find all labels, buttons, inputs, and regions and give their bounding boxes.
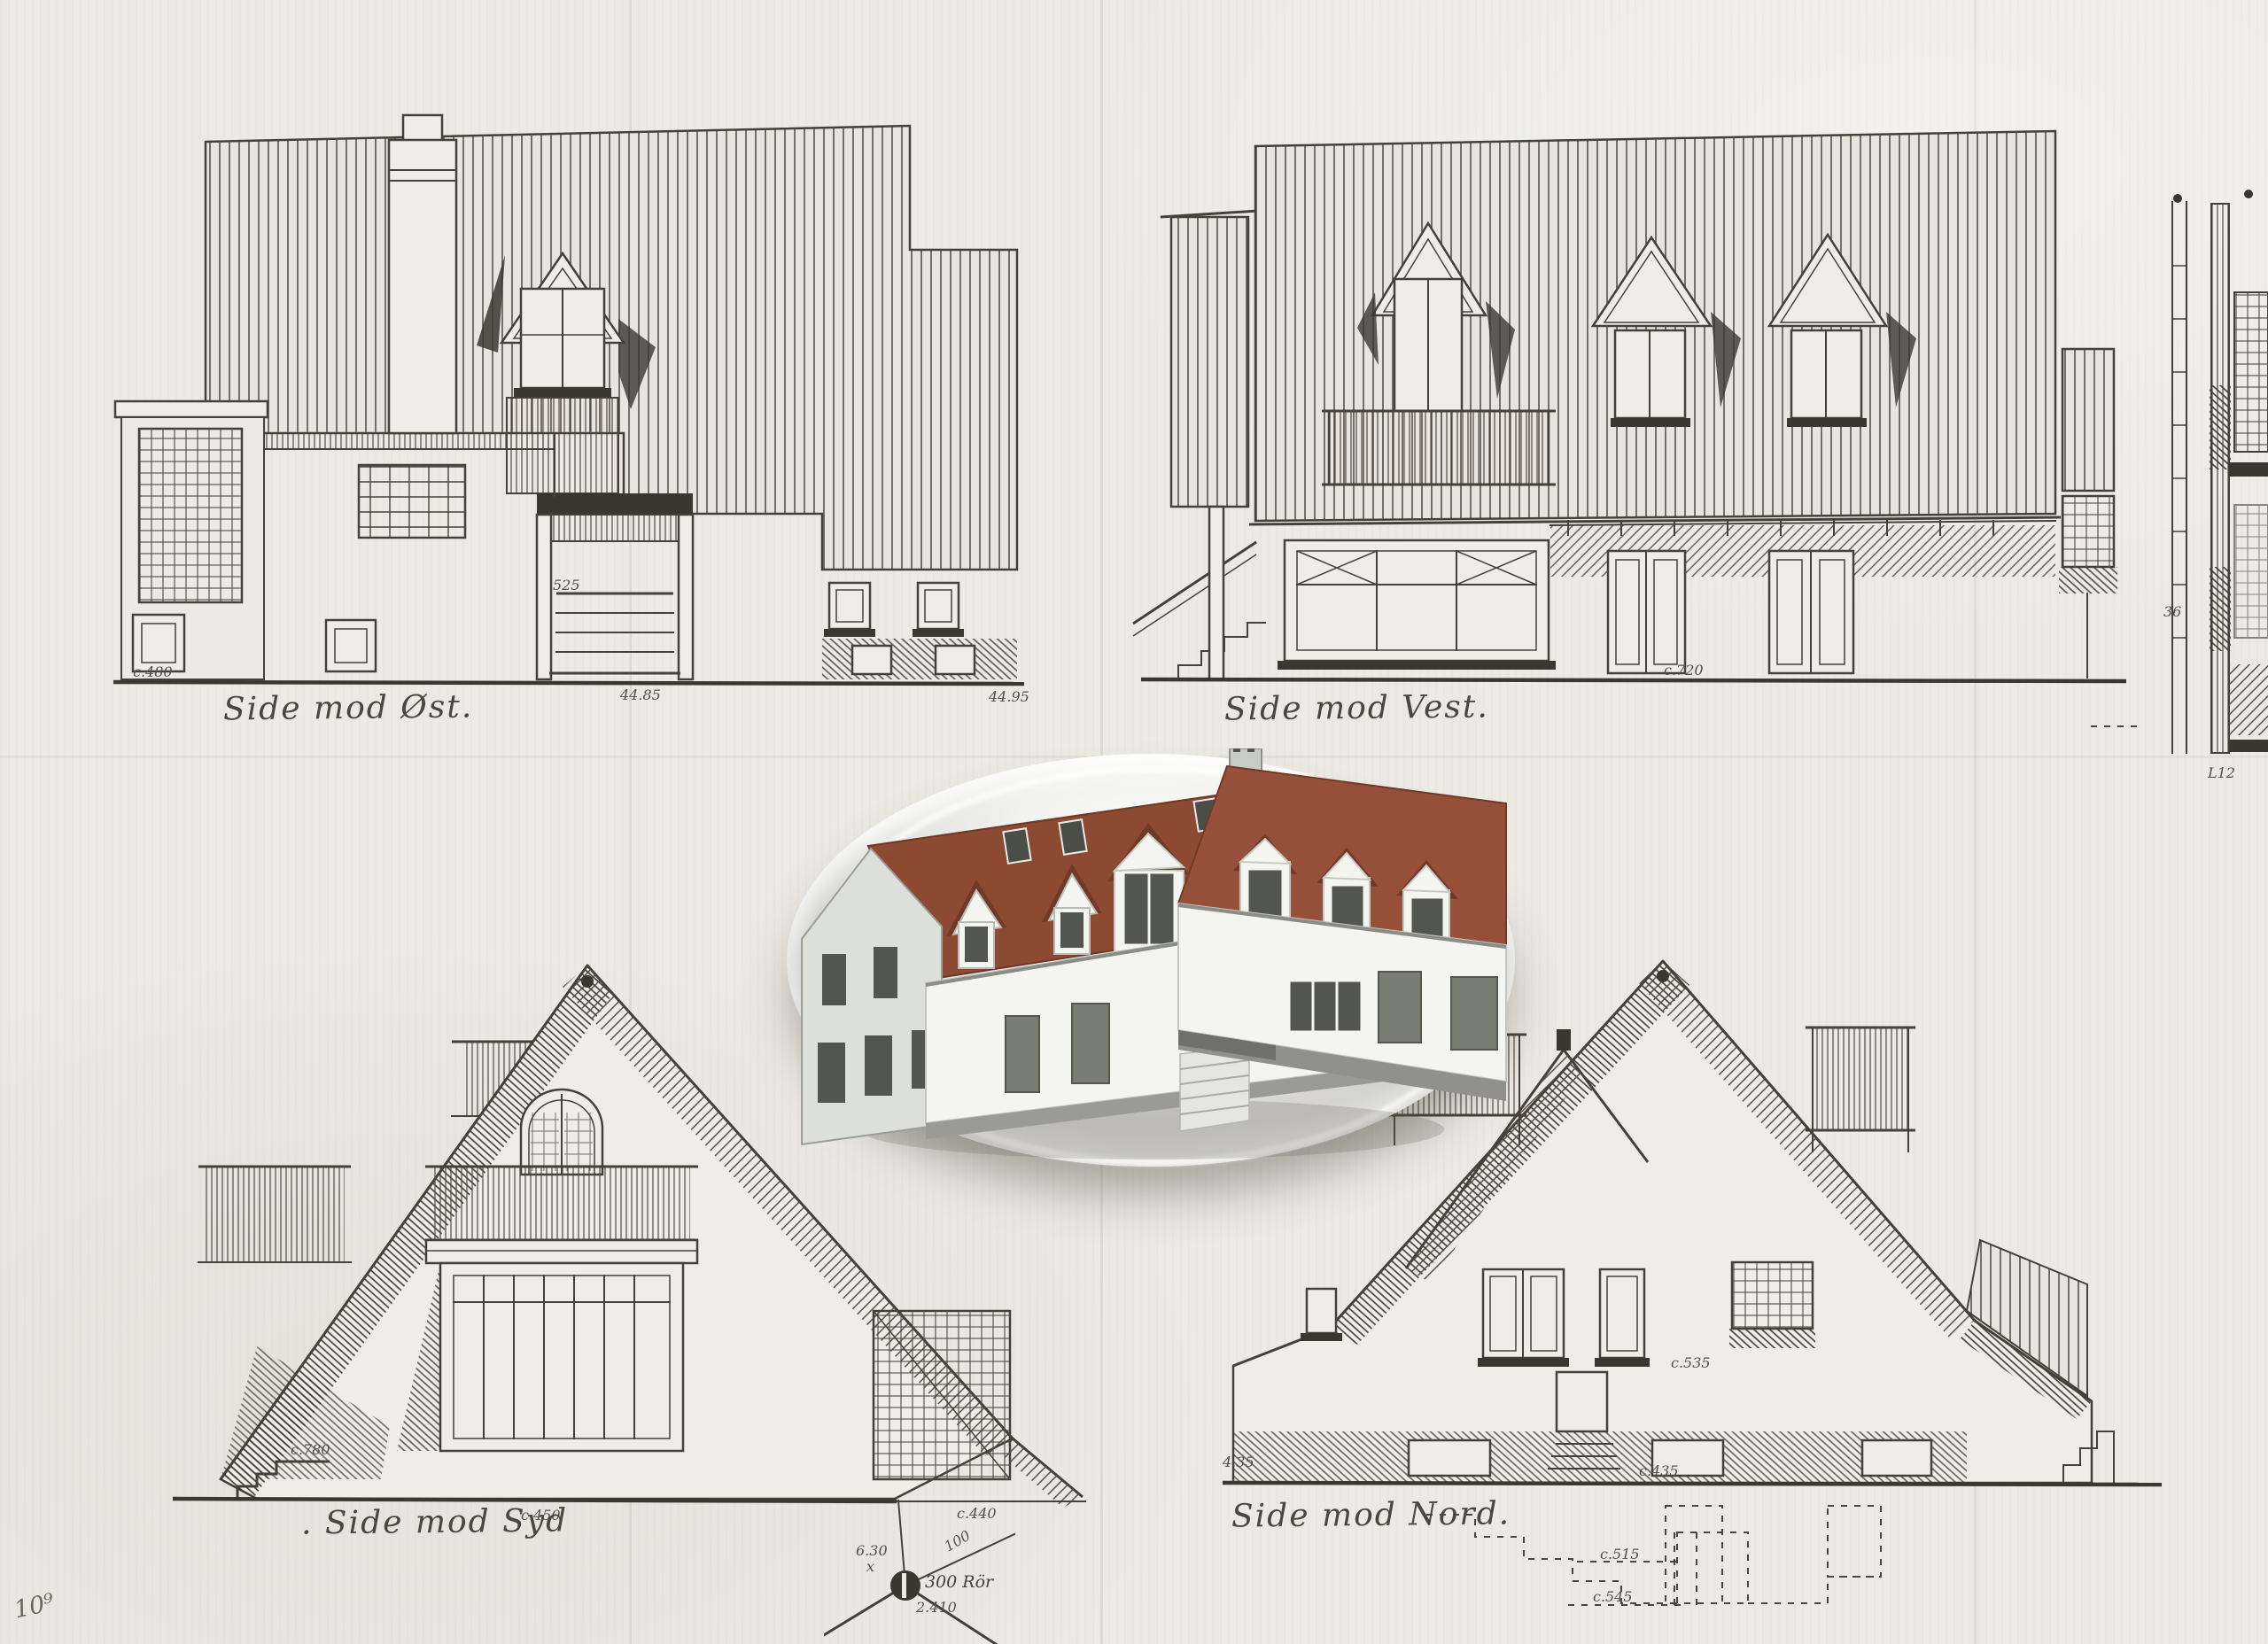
caption-south: . Side mod Syd	[301, 1502, 569, 1541]
dim-annotation: c.480	[133, 663, 173, 680]
dim-annotation: c.435	[1639, 1462, 1679, 1479]
east-chimney	[389, 115, 456, 433]
caption-west: Side mod Vest.	[1224, 688, 1489, 727]
west-french-door	[1769, 551, 1853, 673]
east-ground-line	[113, 682, 1024, 684]
west-french-door	[1608, 551, 1685, 673]
east-left-wing	[115, 401, 268, 679]
south-porch	[874, 1311, 1083, 1508]
dim-annotation: c.535	[1671, 1354, 1711, 1371]
dim-annotation: 36	[2163, 603, 2181, 620]
house-3d-render	[780, 748, 1524, 1174]
north-basement	[1233, 1431, 1967, 1483]
dim-annotation: 100	[942, 1527, 974, 1555]
dim-annotation: 525	[553, 577, 580, 593]
dim-annotation: c.720	[1664, 662, 1704, 679]
pipe-annotation: 300 Rör	[925, 1572, 995, 1592]
north-lattice-window	[1729, 1262, 1815, 1348]
dim-annotation: c.545	[1593, 1588, 1633, 1605]
west-right-tower	[2059, 349, 2117, 678]
west-stair-tower	[1133, 211, 1265, 679]
south-bay-window	[397, 1263, 683, 1451]
south-balcony	[425, 1167, 698, 1263]
south-ground-line	[173, 1499, 897, 1501]
west-large-window	[1278, 540, 1556, 670]
section-drawing: 36 L12	[2162, 186, 2268, 806]
dim-annotation: 4.35	[1222, 1454, 1254, 1470]
render-right-house	[1178, 748, 1506, 1101]
south-arched-window	[521, 1090, 602, 1175]
east-elevation-drawing: c.480 525 44.85 44.95	[89, 53, 1045, 726]
dim-annotation: x	[866, 1558, 874, 1575]
caption-north: Side mod Nord.	[1231, 1495, 1511, 1534]
north-balcony	[1806, 1027, 1915, 1152]
caption-east: Side mod Øst.	[223, 689, 474, 728]
dim-annotation: c.780	[291, 1441, 330, 1458]
dim-annotation: 44.85	[619, 686, 661, 703]
blueprint-sheet: { "sheet": { "paper_color": "#ECEAE3", "…	[0, 0, 2268, 1644]
site-survey-point: 6.30 x 100 300 Rör 2.410	[824, 1497, 1205, 1644]
west-ground-line	[1141, 679, 2126, 681]
dim-annotation: 6.30	[856, 1542, 888, 1559]
north-window	[1595, 1269, 1650, 1367]
east-right-wall	[822, 583, 1017, 679]
house-3d-badge[interactable]	[780, 748, 1524, 1174]
dim-annotation: 44.95	[988, 688, 1029, 705]
dim-annotation: 2.410	[915, 1599, 957, 1616]
north-window-small	[1301, 1289, 1342, 1341]
dim-annotation: c.515	[1600, 1546, 1640, 1563]
north-window-pair	[1478, 1269, 1569, 1367]
north-ground-line	[1223, 1483, 2162, 1485]
dim-annotation: L12	[2207, 764, 2235, 781]
west-elevation-drawing: c.720	[1125, 106, 2144, 744]
